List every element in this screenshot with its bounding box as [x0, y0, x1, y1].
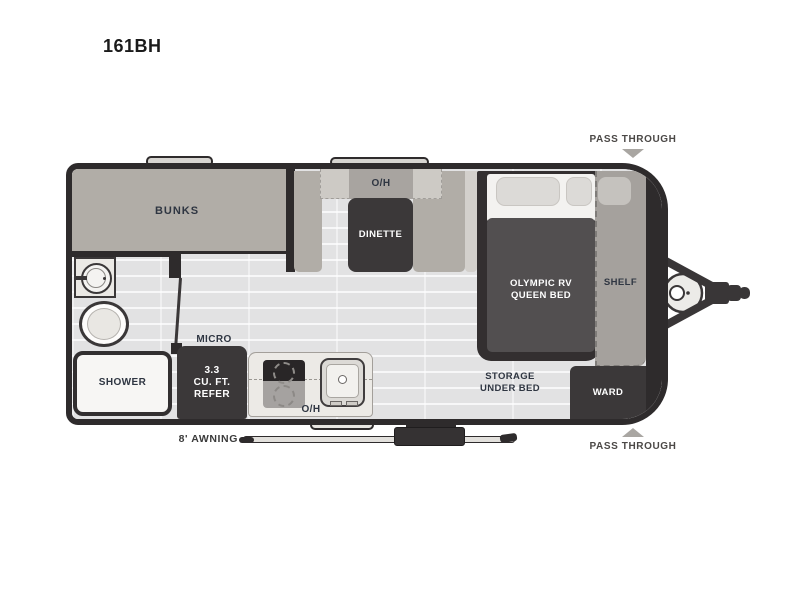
coupler-neck	[727, 285, 741, 301]
awning-label: 8' AWNING	[162, 433, 238, 445]
pass-through-bottom-label: PASS THROUGH	[583, 441, 683, 453]
model-number: 161BH	[103, 36, 162, 57]
pillow-icon	[496, 177, 560, 206]
dinette-table: DINETTE	[348, 198, 413, 272]
tank-valve-icon	[670, 286, 684, 300]
shelf-area: SHELF	[595, 171, 646, 367]
refer-size-label: 3.3	[204, 365, 219, 377]
arrow-down-icon	[622, 149, 644, 158]
refer-label: REFER	[194, 389, 230, 401]
bench-edge-trim	[465, 171, 477, 272]
bunk-front-edge	[181, 251, 287, 254]
overhead-kitchen-label: O/H	[291, 404, 331, 416]
queen-bed: OLYMPIC RV QUEEN BED	[487, 218, 595, 352]
awning-arm-right	[500, 433, 518, 443]
storage-label: STORAGE UNDER BED	[458, 371, 562, 395]
front-nose-wall	[646, 169, 662, 419]
shelf-label: SHELF	[597, 277, 644, 289]
trailer-floor: BUNKS SHOWER MICRO	[72, 169, 662, 419]
micro-label: MICRO	[164, 334, 264, 346]
stove-icon	[263, 360, 305, 408]
ward-label: WARD	[593, 387, 624, 399]
awning-rail	[243, 436, 515, 443]
kitchen-sink-icon	[320, 358, 365, 407]
arrow-up-icon	[622, 428, 644, 437]
dinette-label: DINETTE	[359, 229, 402, 241]
refrigerator: 3.3 CU. FT. REFER	[177, 346, 247, 419]
pillow-icon	[566, 177, 592, 206]
refer-units-label: CU. FT.	[194, 377, 231, 389]
wardrobe: WARD	[570, 366, 646, 419]
overhead-dinette-label: O/H	[349, 178, 413, 190]
coupler-ball-icon	[739, 287, 750, 299]
dinette-bench-left	[294, 171, 322, 272]
faucet-icon	[74, 276, 87, 280]
pass-through-top-label: PASS THROUGH	[583, 134, 683, 146]
awning-arm-left	[239, 437, 254, 443]
bunks-label: BUNKS	[127, 205, 227, 217]
shower-label: SHOWER	[83, 377, 162, 389]
coupler-body	[705, 282, 729, 304]
bed-label-line1: OLYMPIC RV	[510, 278, 572, 290]
toilet-icon	[79, 301, 129, 347]
floorplan-page: 161BH PASS THROUGH BUNKS	[0, 0, 800, 600]
bath-door-jamb-top	[169, 253, 181, 278]
overhead-cabinet-left	[320, 169, 350, 199]
trailer-body: BUNKS SHOWER MICRO	[66, 163, 668, 425]
bed-label-line2: QUEEN BED	[511, 290, 571, 302]
entry-step	[394, 427, 465, 446]
overhead-cabinet-right	[412, 169, 442, 199]
bath-vanity	[74, 257, 116, 298]
burner-icon	[273, 362, 295, 384]
